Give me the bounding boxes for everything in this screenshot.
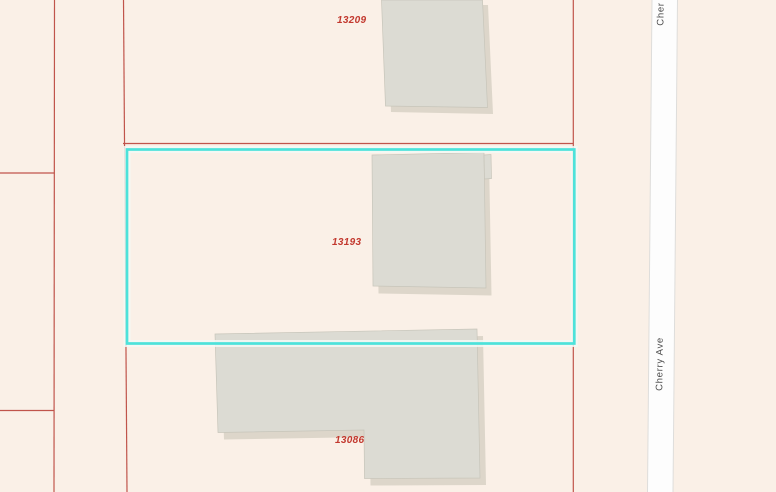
street-label-cherry-ave: Cherry Ave xyxy=(654,337,665,391)
street-cherry-ave xyxy=(648,0,678,492)
parcel-13086[interactable] xyxy=(127,344,574,492)
parcel-label-13086: 13086 xyxy=(335,435,364,446)
map-canvas[interactable] xyxy=(0,0,776,492)
parcel-label-13209: 13209 xyxy=(337,15,366,26)
map-viewport[interactable]: 13209 13193 13086 Cher Cherry Ave xyxy=(0,0,776,492)
street-layer xyxy=(648,0,678,492)
parcel-label-13193: 13193 xyxy=(332,237,361,248)
parcel-boundary-line-west xyxy=(54,0,55,492)
street-label-cherry-ave-top: Cher xyxy=(655,2,666,26)
